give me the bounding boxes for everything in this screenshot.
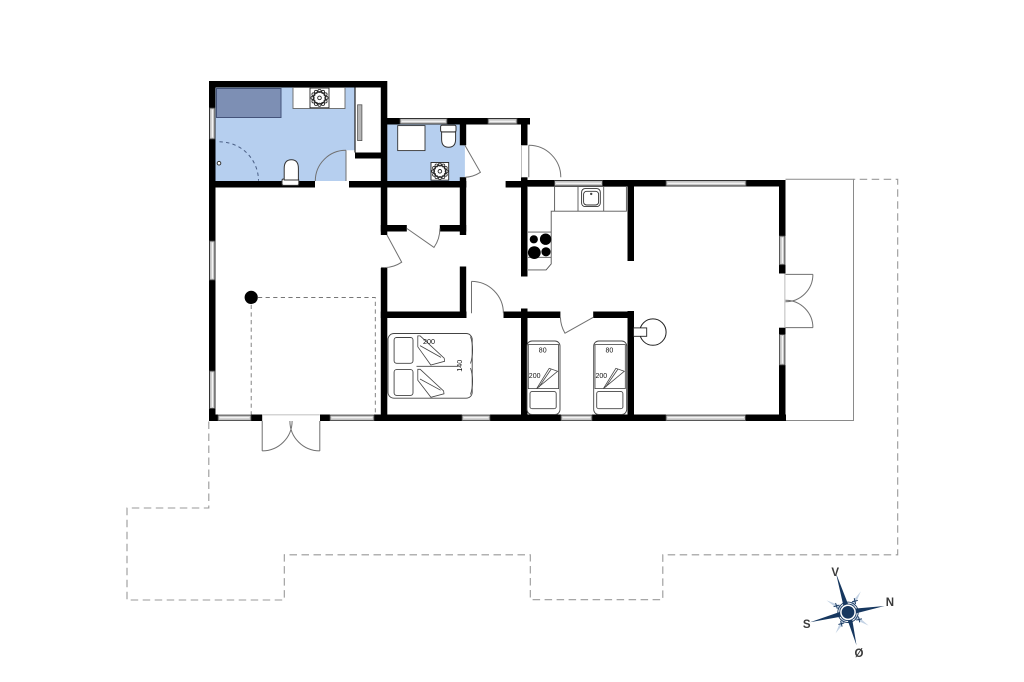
svg-text:200: 200 — [423, 337, 435, 346]
svg-text:80: 80 — [539, 348, 547, 355]
svg-text:140: 140 — [455, 360, 464, 372]
svg-text:200: 200 — [596, 373, 608, 380]
svg-text:200: 200 — [529, 373, 541, 380]
svg-text:N: N — [886, 597, 894, 609]
svg-text:80: 80 — [606, 348, 614, 355]
svg-text:Ø: Ø — [855, 648, 864, 660]
svg-text:V: V — [831, 567, 839, 579]
svg-text:S: S — [803, 619, 811, 631]
